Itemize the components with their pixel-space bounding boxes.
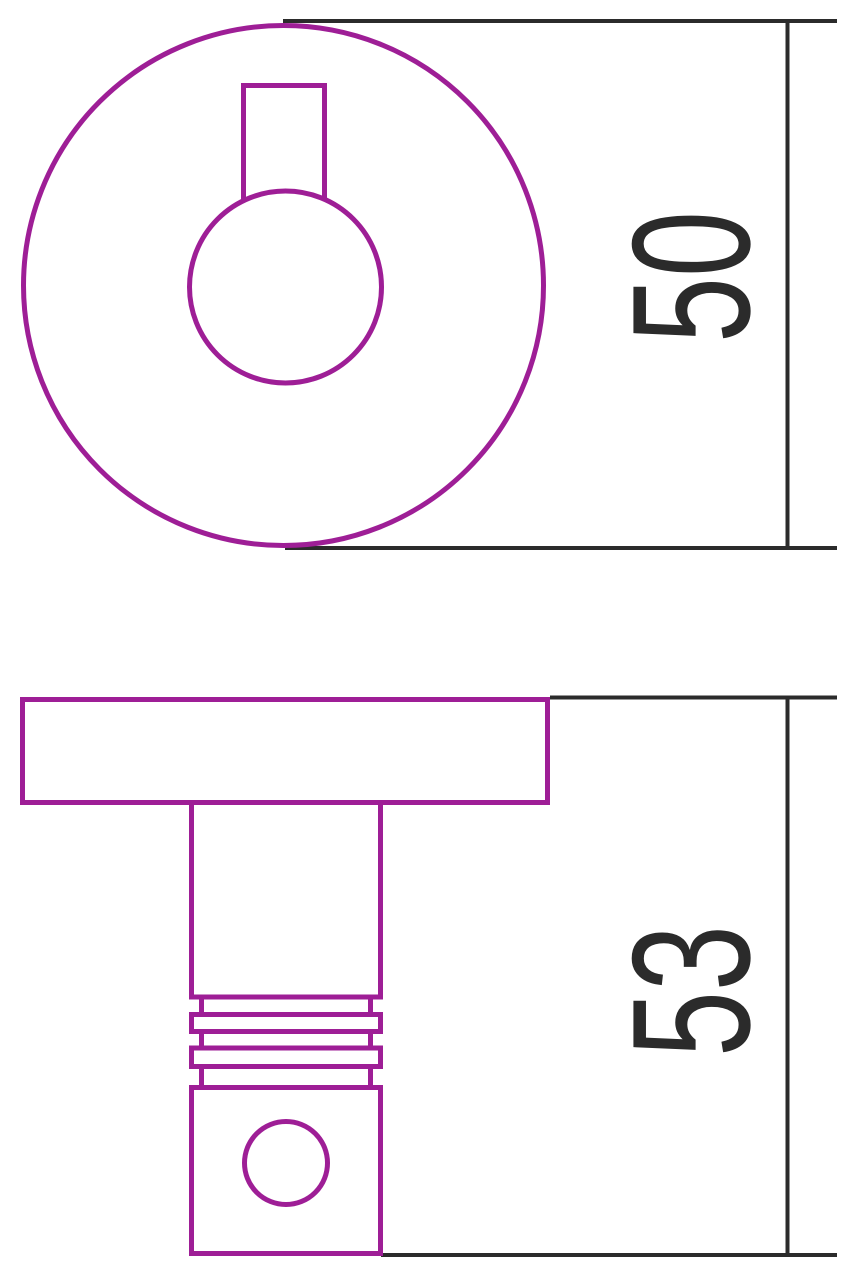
hook-slot-outline (244, 86, 325, 206)
flange-outline (23, 700, 548, 803)
end-block-outline (192, 1088, 381, 1254)
side-view: 53 (23, 696, 838, 1258)
drawing-canvas: 50 53 (0, 0, 855, 1280)
front-view: 50 (24, 19, 838, 550)
neck-outline (202, 997, 371, 1015)
ring-outline (192, 1015, 381, 1032)
neck-outline (202, 1067, 371, 1088)
center-boss-circle (190, 191, 382, 383)
front-dimension-label: 50 (597, 211, 785, 343)
technical-drawing: 50 53 (0, 0, 855, 1280)
ring-outline (192, 1048, 381, 1067)
stem-outline (192, 803, 381, 998)
side-view-dimension: 53 (381, 696, 837, 1258)
side-dimension-label: 53 (597, 925, 785, 1057)
block-hole-circle (245, 1122, 328, 1205)
